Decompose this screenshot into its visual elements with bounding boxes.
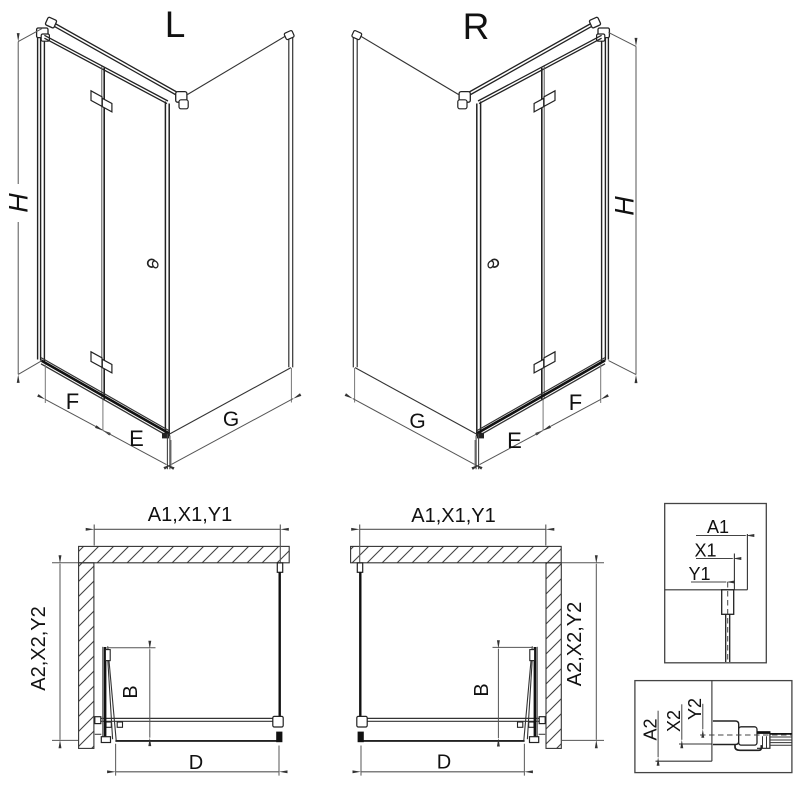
svg-text:Y2: Y2 xyxy=(685,698,705,720)
svg-text:F: F xyxy=(569,390,582,415)
svg-text:G: G xyxy=(409,410,425,433)
svg-text:R: R xyxy=(463,6,490,47)
svg-text:F: F xyxy=(66,389,79,414)
svg-text:A1,X1,Y1: A1,X1,Y1 xyxy=(148,504,233,526)
svg-text:H: H xyxy=(4,193,34,213)
svg-text:E: E xyxy=(129,426,144,451)
svg-text:A1,X1,Y1: A1,X1,Y1 xyxy=(411,505,496,527)
svg-text:D: D xyxy=(189,752,203,774)
svg-text:A2,X2,Y2: A2,X2,Y2 xyxy=(28,606,50,691)
svg-text:L: L xyxy=(165,4,186,45)
svg-text:A2: A2 xyxy=(641,718,661,740)
svg-text:G: G xyxy=(223,408,239,431)
svg-text:X1: X1 xyxy=(694,541,716,561)
svg-text:X2: X2 xyxy=(664,710,684,732)
svg-text:H: H xyxy=(610,196,640,216)
svg-text:A2,X2,Y2: A2,X2,Y2 xyxy=(564,602,586,687)
svg-text:A1: A1 xyxy=(707,517,729,537)
svg-text:E: E xyxy=(507,428,522,453)
svg-text:D: D xyxy=(437,752,451,774)
svg-text:B: B xyxy=(471,683,493,696)
svg-text:B: B xyxy=(120,685,142,698)
svg-text:Y1: Y1 xyxy=(688,564,710,584)
